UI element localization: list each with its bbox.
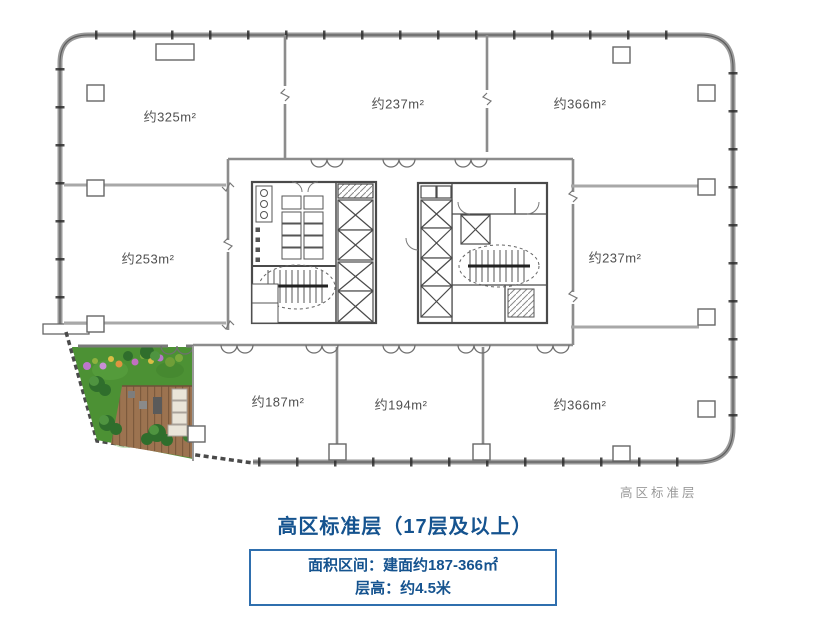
page-title: 高区标准层（17层及以上） bbox=[0, 510, 810, 539]
room-label-top-middle: 约237m² bbox=[372, 94, 425, 113]
plan-corner-note: 高区标准层 bbox=[620, 482, 698, 501]
left-core-elevators bbox=[338, 184, 373, 322]
info-box: 面积区间：建面约187-366㎡ 层高：约4.5米 bbox=[249, 549, 557, 606]
room-label-top-left: 约325m² bbox=[144, 107, 197, 126]
room-label-bottom-middle: 约194m² bbox=[375, 395, 428, 414]
area-range-text: 面积区间：建面约187-366㎡ bbox=[308, 556, 498, 576]
floor-height-text: 层高：约4.5米 bbox=[355, 579, 451, 599]
right-core bbox=[406, 183, 547, 323]
floor-plan-page: 约325m² 约237m² 约366m² 约253m² 约237m² 约187m… bbox=[0, 0, 829, 626]
room-label-mid-left: 约253m² bbox=[122, 249, 175, 268]
room-label-bottom-left: 约187m² bbox=[252, 392, 305, 411]
room-label-mid-right: 约237m² bbox=[589, 248, 642, 267]
left-core bbox=[252, 182, 376, 323]
service-shaft bbox=[508, 289, 534, 317]
roof-garden bbox=[72, 345, 193, 459]
room-label-top-right: 约366m² bbox=[554, 94, 607, 113]
room-label-bottom-right: 约366m² bbox=[554, 395, 607, 414]
